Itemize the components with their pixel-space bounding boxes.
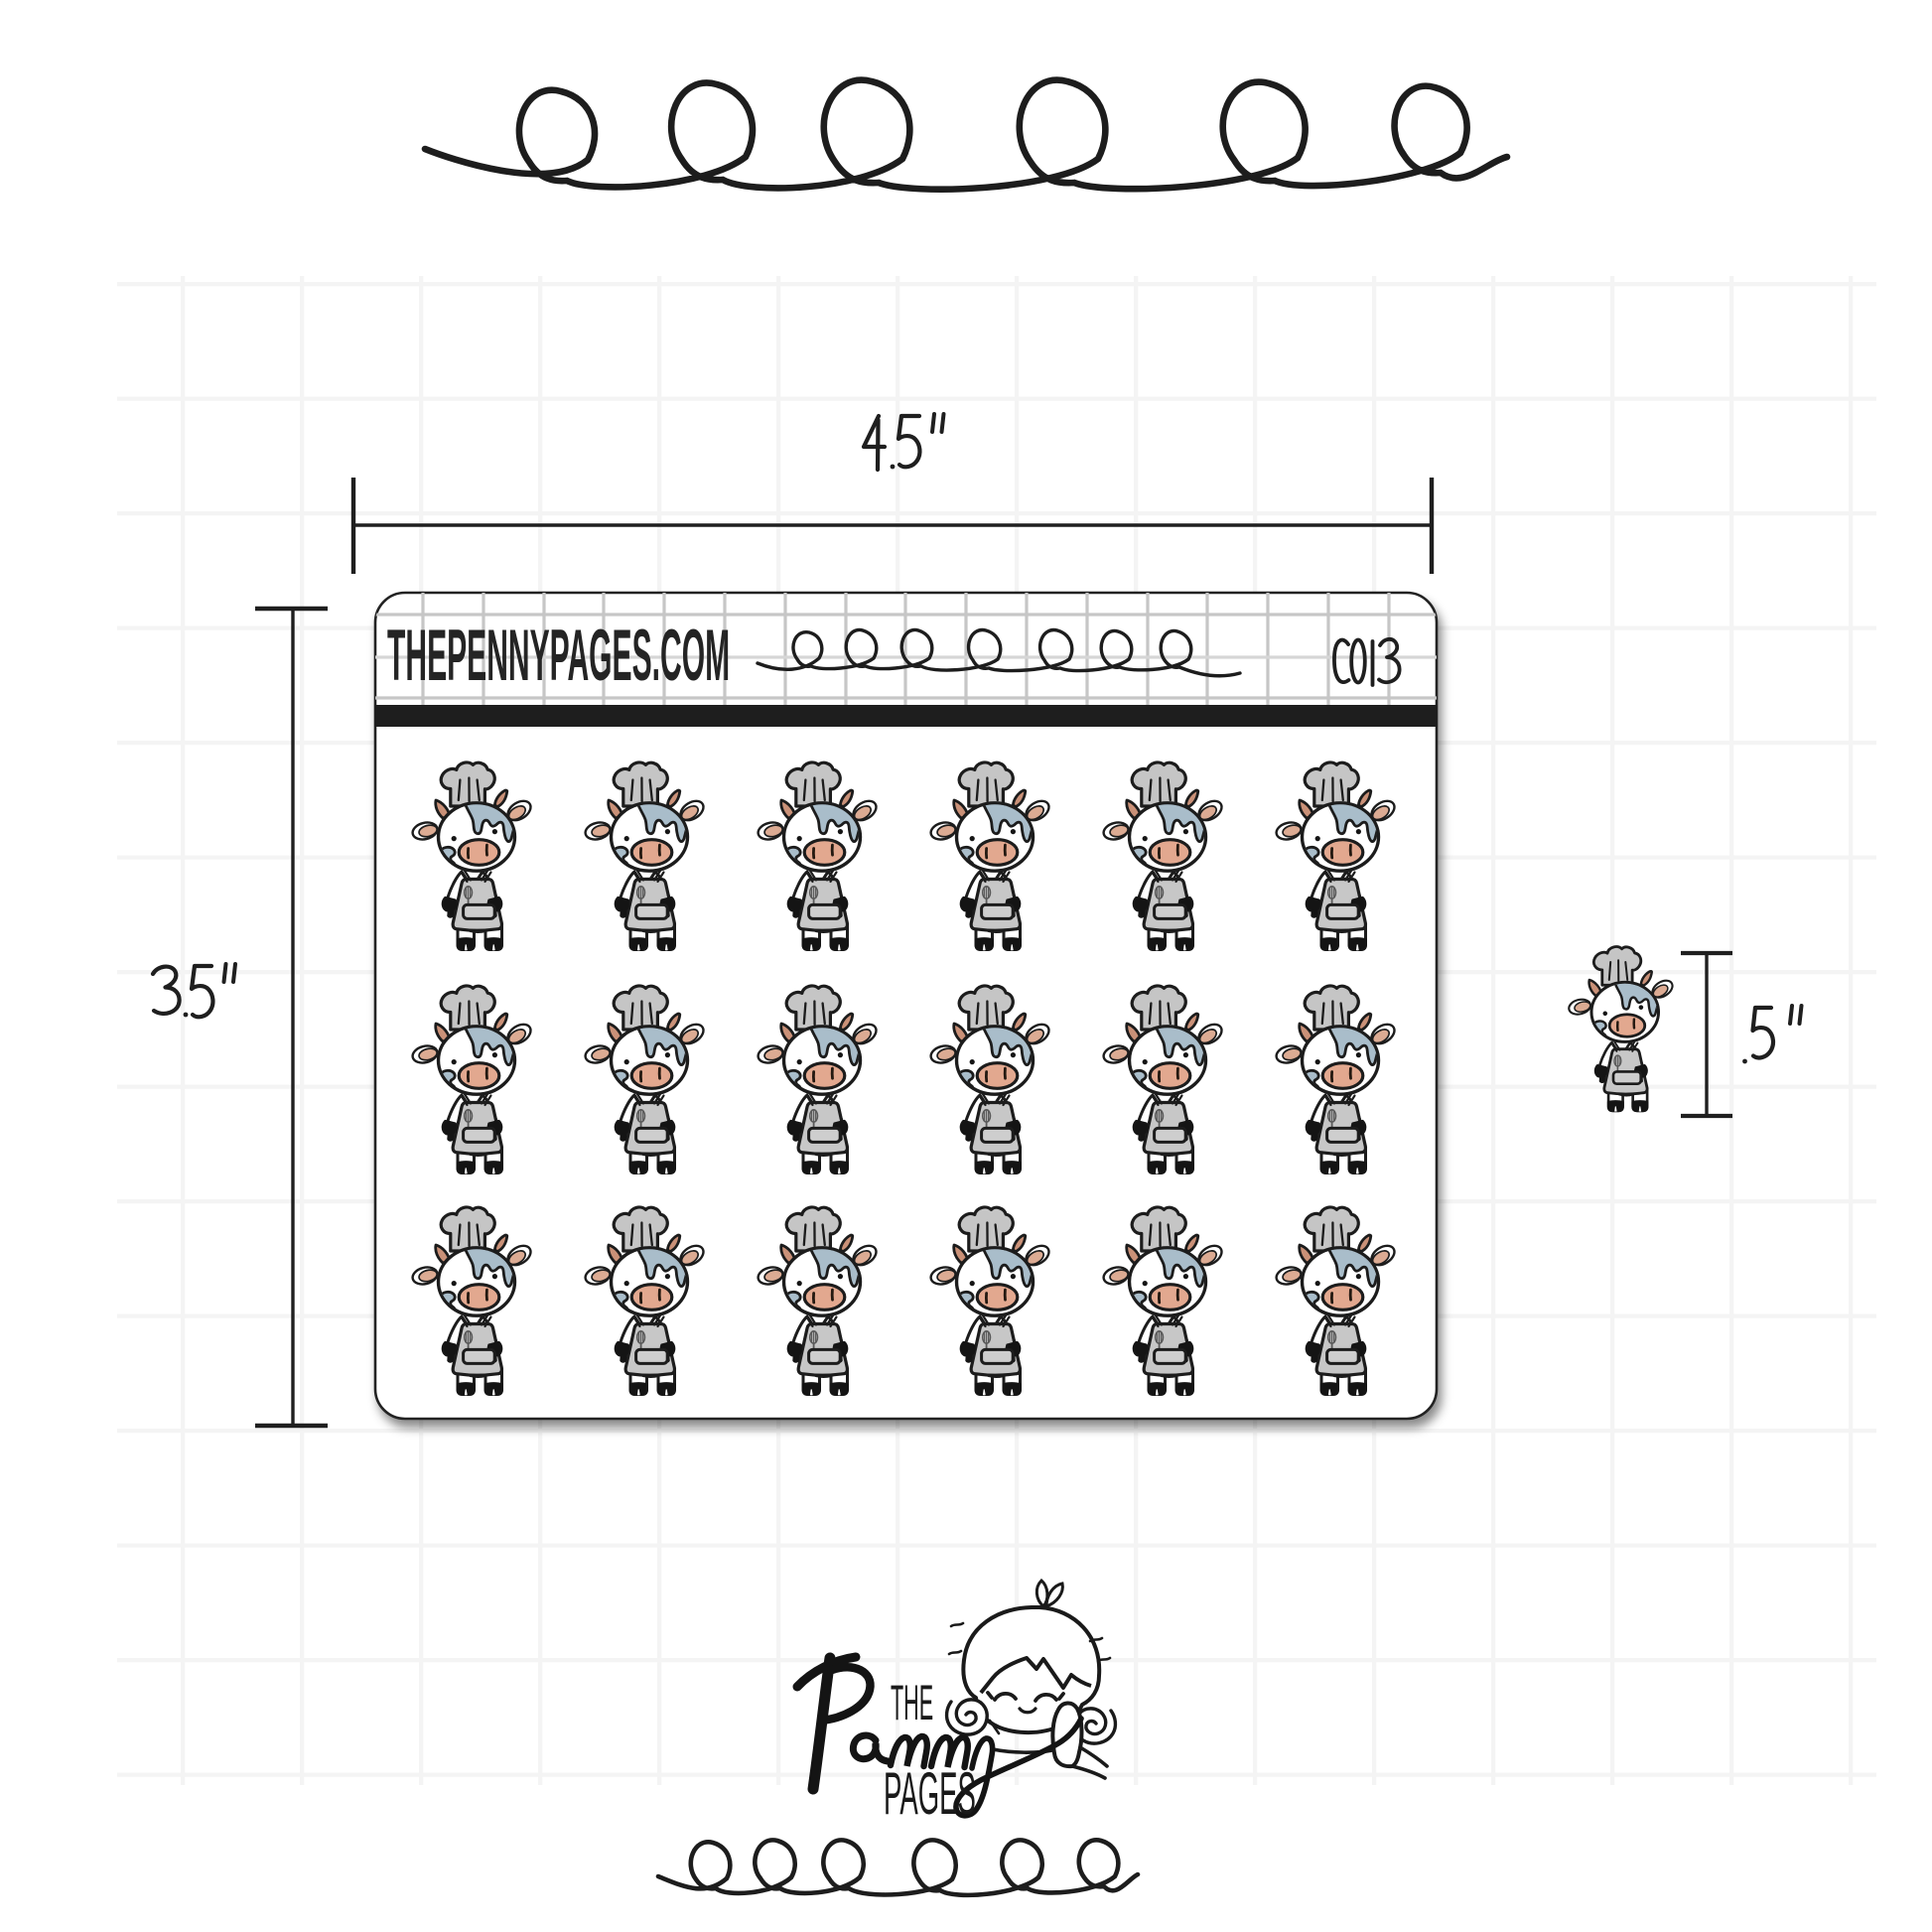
svg-text:THE: THE [891, 1676, 933, 1730]
svg-text:THEPENNYPAGES.COM: THEPENNYPAGES.COM [387, 616, 730, 697]
svg-text:PAGES: PAGES [884, 1760, 976, 1827]
